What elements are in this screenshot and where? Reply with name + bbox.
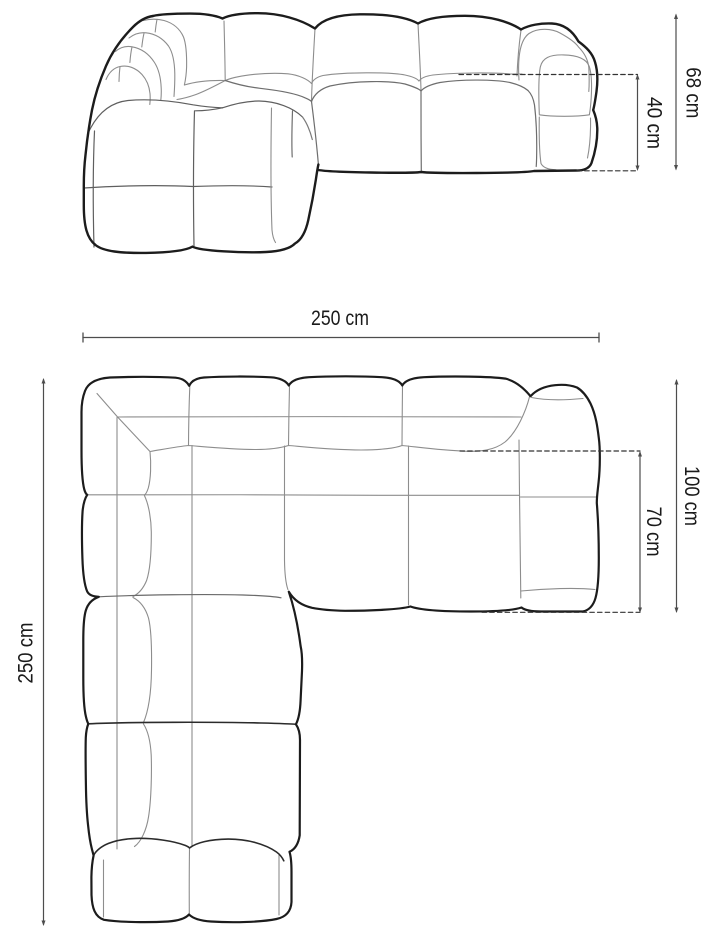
svg-text:40 cm: 40 cm	[642, 97, 666, 149]
svg-text:100 cm: 100 cm	[680, 466, 704, 526]
svg-text:250 cm: 250 cm	[311, 306, 369, 330]
svg-text:70 cm: 70 cm	[642, 507, 666, 557]
svg-text:68 cm: 68 cm	[681, 67, 705, 118]
svg-text:250 cm: 250 cm	[14, 623, 38, 684]
